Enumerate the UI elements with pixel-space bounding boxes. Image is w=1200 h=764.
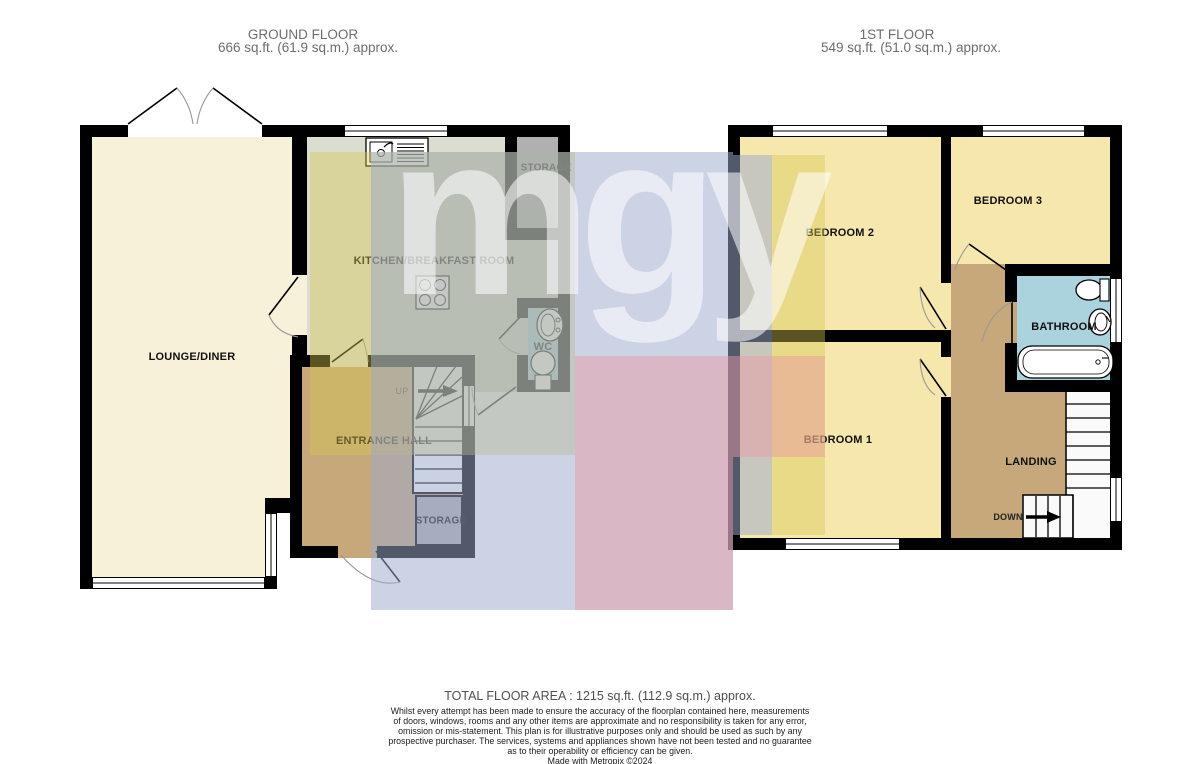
kitchen-floor	[505, 240, 558, 300]
bedroom1-label: BEDROOM 1	[804, 434, 872, 446]
lounge-floor	[92, 137, 300, 513]
door-opening	[338, 546, 377, 558]
floorplan-canvas: GROUND FLOOR 666 sq.ft. (61.9 sq.m.) app…	[0, 0, 1200, 764]
door-opening	[472, 380, 517, 392]
wall	[941, 330, 951, 357]
disclaimer-line: prospective purchaser. The services, sys…	[388, 736, 811, 746]
disclaimer-line: omission or mis-statement. This plan is …	[398, 726, 802, 736]
bedroom3-label: BEDROOM 3	[974, 195, 1042, 207]
metropix-credit: Made with Metropix ©2024	[548, 756, 653, 764]
door-opening	[292, 275, 307, 335]
ground-floor-area: 666 sq.ft. (61.9 sq.m.) approx.	[218, 40, 398, 55]
wall	[941, 125, 951, 283]
wall	[1017, 264, 1110, 276]
wall	[1005, 264, 1017, 302]
watermark-block-pink	[575, 356, 733, 610]
disclaimer-line: Whilst every attempt has been made to en…	[391, 706, 810, 716]
door-opening	[1005, 302, 1017, 343]
wall	[888, 125, 982, 137]
wall	[302, 546, 338, 558]
wall	[290, 355, 330, 367]
french-doors-icon	[128, 88, 262, 124]
window	[463, 385, 475, 427]
door-opening	[517, 318, 528, 355]
window	[1110, 477, 1122, 522]
window	[344, 125, 448, 137]
storage-floor	[517, 137, 558, 228]
door-opening	[941, 357, 951, 397]
window	[1110, 278, 1122, 343]
wall	[292, 125, 307, 275]
lounge-label: LOUNGE/DINER	[149, 351, 236, 363]
hall-label: ENTRANCE HALL	[336, 435, 432, 447]
lounge-floor	[92, 513, 265, 577]
landing-label: LANDING	[1005, 456, 1057, 468]
staircase-ground	[413, 365, 463, 493]
wall	[377, 546, 475, 558]
wall	[728, 330, 951, 342]
wall	[900, 538, 1122, 550]
wall	[728, 538, 785, 550]
disclaimer-line: of doors, windows, rooms and any other i…	[393, 716, 806, 726]
wall	[505, 125, 517, 228]
door-opening	[330, 355, 368, 367]
landing-floor	[951, 264, 1005, 392]
wall	[517, 298, 528, 318]
down-label: DOWN	[993, 512, 1022, 522]
wall	[290, 355, 302, 558]
wall	[1110, 125, 1122, 278]
window	[785, 538, 900, 550]
window	[92, 577, 265, 589]
staircase-first	[1066, 392, 1110, 495]
disclaimer-line: as to their operability or efficiency ca…	[507, 746, 692, 756]
staircase-first-bottom	[1023, 495, 1073, 538]
wc-label: WC	[534, 341, 553, 353]
wall	[80, 125, 92, 589]
up-label: UP	[396, 386, 409, 396]
kitchen-label: KITCHEN/BREAKFAST ROOM	[354, 255, 515, 267]
wall	[463, 427, 475, 558]
wall	[517, 380, 570, 392]
total-floor-area: TOTAL FLOOR AREA : 1215 sq.ft. (112.9 sq…	[444, 689, 755, 703]
bedroom2-label: BEDROOM 2	[806, 227, 874, 239]
window	[772, 125, 888, 137]
wall	[265, 577, 277, 589]
door-opening	[941, 283, 951, 330]
first-floor-area: 549 sq.ft. (51.0 sq.m.) approx.	[821, 40, 1001, 55]
window	[265, 513, 277, 577]
stairwell-void	[1073, 495, 1110, 538]
wall	[1005, 380, 1122, 392]
window	[982, 125, 1085, 137]
wall	[463, 355, 475, 385]
wall	[941, 397, 951, 538]
storage-label: STORAGE	[521, 163, 572, 174]
bathroom-label: BATHROOM	[1031, 321, 1097, 333]
door-opening	[951, 264, 1005, 276]
storage-label: STORAGE	[416, 516, 467, 527]
wall	[1110, 343, 1122, 477]
wall	[368, 355, 475, 367]
wall	[517, 355, 528, 380]
